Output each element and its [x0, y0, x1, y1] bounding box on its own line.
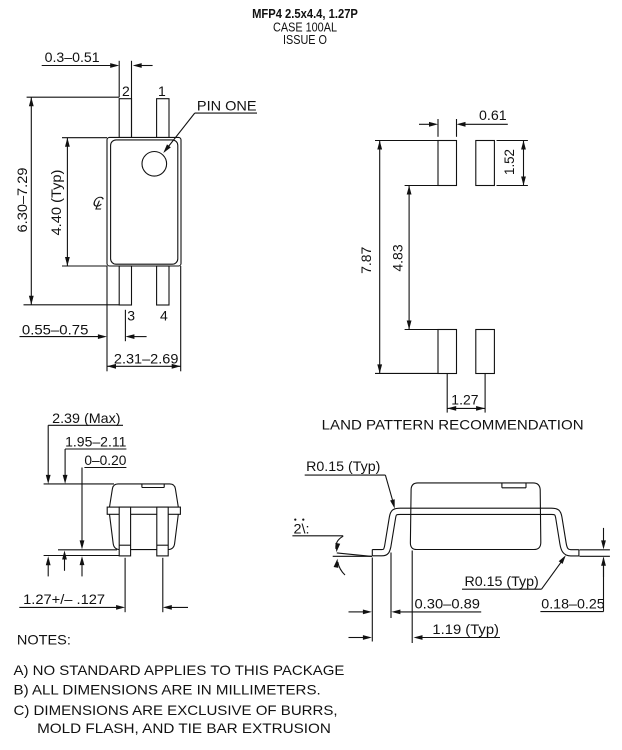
svg-text:MFP4 2.5x4.4, 1.27P: MFP4 2.5x4.4, 1.27P — [252, 7, 358, 21]
svg-text:R0.15 (Typ): R0.15 (Typ) — [465, 573, 539, 589]
svg-text:1.95–2.11: 1.95–2.11 — [65, 434, 127, 450]
svg-text:0–0.20: 0–0.20 — [84, 452, 126, 468]
svg-text:B) ALL DIMENSIONS ARE IN MILLI: B) ALL DIMENSIONS ARE IN MILLIMETERS. — [14, 681, 321, 697]
svg-text:4.40 (Typ): 4.40 (Typ) — [48, 170, 64, 236]
svg-text:7.87: 7.87 — [358, 246, 374, 273]
svg-text:2\:: 2\: — [294, 520, 310, 536]
svg-text:ISSUE O: ISSUE O — [283, 33, 327, 47]
svg-text:MOLD FLASH, AND TIE BAR EXTRUS: MOLD FLASH, AND TIE BAR EXTRUSION — [37, 720, 331, 736]
svg-text:1.27: 1.27 — [451, 392, 478, 408]
svg-text:0.61: 0.61 — [479, 107, 507, 123]
svg-text:0.18–0.25: 0.18–0.25 — [541, 596, 605, 612]
svg-text:1: 1 — [158, 83, 166, 99]
svg-text:2.39 (Max): 2.39 (Max) — [52, 410, 121, 426]
svg-text:PIN ONE: PIN ONE — [197, 98, 257, 114]
svg-text:6.30–7.29: 6.30–7.29 — [14, 167, 30, 232]
svg-text:4.83: 4.83 — [389, 244, 405, 271]
svg-text:1.27+/– .127: 1.27+/– .127 — [23, 591, 105, 607]
svg-text:2.31–2.69: 2.31–2.69 — [114, 351, 179, 367]
svg-text:1.19 (Typ): 1.19 (Typ) — [432, 621, 499, 637]
svg-text:LAND PATTERN RECOMMENDATION: LAND PATTERN RECOMMENDATION — [322, 416, 584, 432]
svg-text:2: 2 — [122, 83, 130, 99]
svg-text:0.3–0.51: 0.3–0.51 — [45, 49, 100, 65]
svg-text:NOTES:: NOTES: — [17, 631, 71, 647]
svg-text:4: 4 — [160, 308, 168, 324]
svg-text:A) NO STANDARD APPLIES TO THIS: A) NO STANDARD APPLIES TO THIS PACKAGE — [14, 662, 345, 678]
svg-text:0.55–0.75: 0.55–0.75 — [22, 322, 89, 338]
svg-text:C) DIMENSIONS ARE EXCLUSIVE OF: C) DIMENSIONS ARE EXCLUSIVE OF BURRS, — [14, 702, 338, 718]
svg-text:3: 3 — [127, 308, 135, 324]
svg-text:R0.15 (Typ): R0.15 (Typ) — [306, 458, 380, 474]
svg-text:0.30–0.89: 0.30–0.89 — [415, 596, 481, 612]
svg-text:1.52: 1.52 — [501, 149, 517, 175]
